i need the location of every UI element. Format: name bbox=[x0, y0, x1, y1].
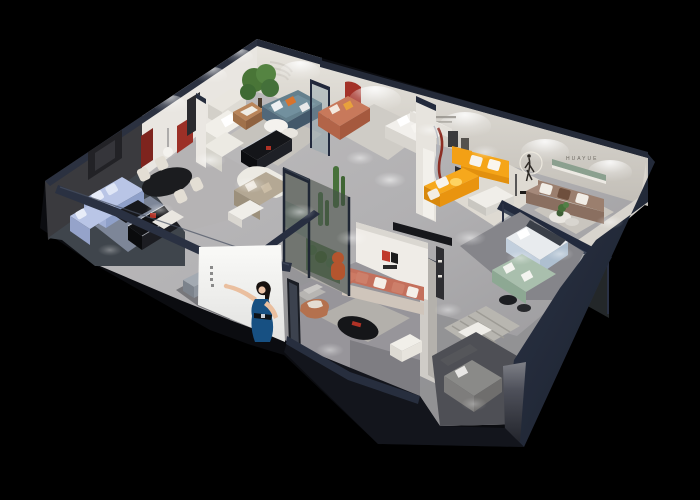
svg-text:HUAYUE: HUAYUE bbox=[566, 156, 598, 162]
